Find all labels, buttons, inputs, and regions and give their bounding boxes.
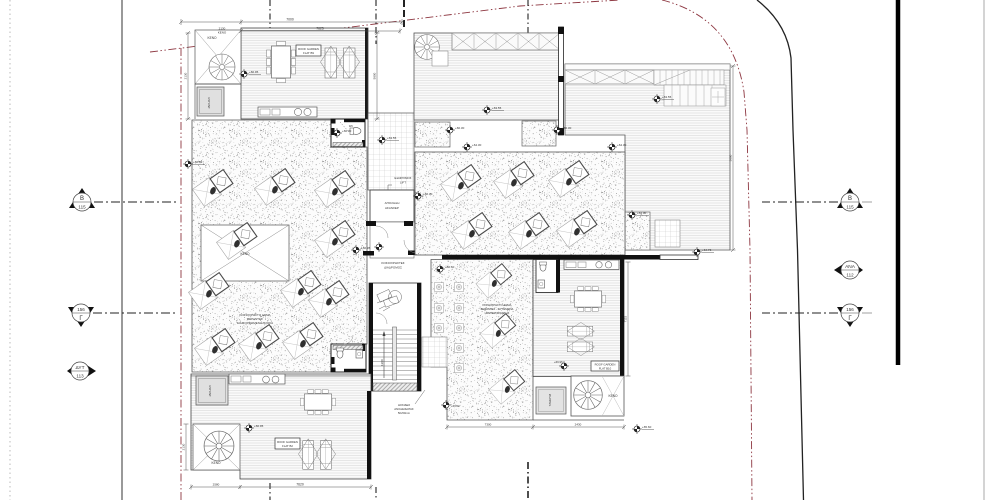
svg-text:ΚΕΝΟ: ΚΕΝΟ [218,31,227,35]
svg-text:ΚΕΝΟ: ΚΕΝΟ [207,36,217,40]
svg-text:7300: 7300 [485,423,492,427]
svg-text:50x50mm: 50x50mm [398,411,411,415]
svg-text:113: 113 [76,374,84,379]
svg-text:JACUZZI: JACUZZI [208,385,212,397]
svg-text:2430: 2430 [575,423,582,427]
svg-text:ΔΙΑΜΟΡΦΩΜΕΝΗ ΠΛΑΚΑ: ΔΙΑΜΟΡΦΩΜΕΝΗ ΠΛΑΚΑ [237,321,273,325]
svg-text:+64.73: +64.73 [702,248,712,252]
svg-text:+66.30: +66.30 [455,126,465,130]
svg-text:7000: 7000 [286,18,294,22]
svg-text:+64.30: +64.30 [617,143,627,147]
svg-text:B: B [848,196,852,202]
svg-text:+66.95: +66.95 [249,70,259,74]
svg-text:ΔΥΤ: ΔΥΤ [76,365,85,371]
svg-text:+66.30: +66.30 [342,129,352,133]
svg-text:+63.55: +63.55 [492,106,502,110]
svg-text:156: 156 [77,307,85,312]
svg-text:115: 115 [846,205,854,210]
svg-text:+66.95: +66.95 [554,360,563,364]
svg-text:+66.30: +66.30 [423,192,433,196]
svg-text:JACUZZI: JACUZZI [207,97,211,109]
svg-text:FLAT B2: FLAT B2 [282,444,293,448]
svg-text:ΔΙΑΔΡΟΜΟΣ: ΔΙΑΔΡΟΜΟΣ [384,266,402,270]
svg-text:B: B [80,196,84,202]
svg-text:+63.55: +63.55 [387,136,397,140]
svg-text:ΑΠΟΛΗΞΗ: ΑΠΟΛΗΞΗ [385,201,400,205]
svg-text:ΚΟΙΝΟΧΡΗΣΤΕΣ: ΚΟΙΝΟΧΡΗΣΤΕΣ [381,261,404,265]
svg-text:5800: 5800 [373,72,377,79]
svg-text:+66.30: +66.30 [562,126,572,130]
svg-text:+64.30: +64.30 [472,143,482,147]
svg-text:1300: 1300 [380,359,384,366]
svg-text:+66.60: +66.60 [451,404,460,408]
svg-text:WC: WC [349,124,353,128]
svg-text:2130: 2130 [184,72,188,79]
svg-text:+66.95: +66.95 [361,246,371,250]
svg-text:ΚΕΝΟ: ΚΕΝΟ [240,252,250,256]
svg-text:2580: 2580 [213,483,220,487]
svg-text:+66.60: +66.60 [445,265,455,269]
svg-text:ΑΝΑ: ΑΝΑ [845,264,856,270]
svg-text:ΕΞΩΡ/ΣΜΟΣ: ΕΞΩΡ/ΣΜΟΣ [395,176,412,180]
svg-text:7620: 7620 [296,483,304,487]
svg-text:+63.55: +63.55 [662,95,672,99]
svg-text:ΚΕΝΟ: ΚΕΝΟ [608,394,618,398]
svg-text:115: 115 [78,205,86,210]
svg-text:+65.60: +65.60 [642,425,652,429]
svg-text:+66.95: +66.95 [254,424,264,428]
svg-text:ΗΜΙΠΕΡΙΦΡΑΚΤΗΣ: ΗΜΙΠΕΡΙΦΡΑΚΤΗΣ [485,311,510,315]
svg-text:ΑΣΑΝΣΕΡ: ΑΣΑΝΣΕΡ [385,206,399,210]
svg-text:112: 112 [846,273,854,278]
svg-text:ΚΕΝΟ: ΚΕΝΟ [211,461,221,465]
svg-text:FLAT B10: FLAT B10 [599,367,612,371]
svg-text:7115: 7115 [624,315,628,322]
svg-text:2130: 2130 [182,443,186,450]
svg-text:FLAT B9: FLAT B9 [303,51,314,55]
svg-text:5880: 5880 [729,154,733,161]
svg-text:LIFT: LIFT [400,181,406,185]
svg-text:156: 156 [846,307,854,312]
svg-text:+64.90: +64.90 [637,211,647,215]
svg-text:7625: 7625 [316,27,324,31]
svg-text:ΤΖΑΚΟΥΖΙ: ΤΖΑΚΟΥΖΙ [548,393,552,406]
svg-text:+66.30: +66.30 [193,160,203,164]
